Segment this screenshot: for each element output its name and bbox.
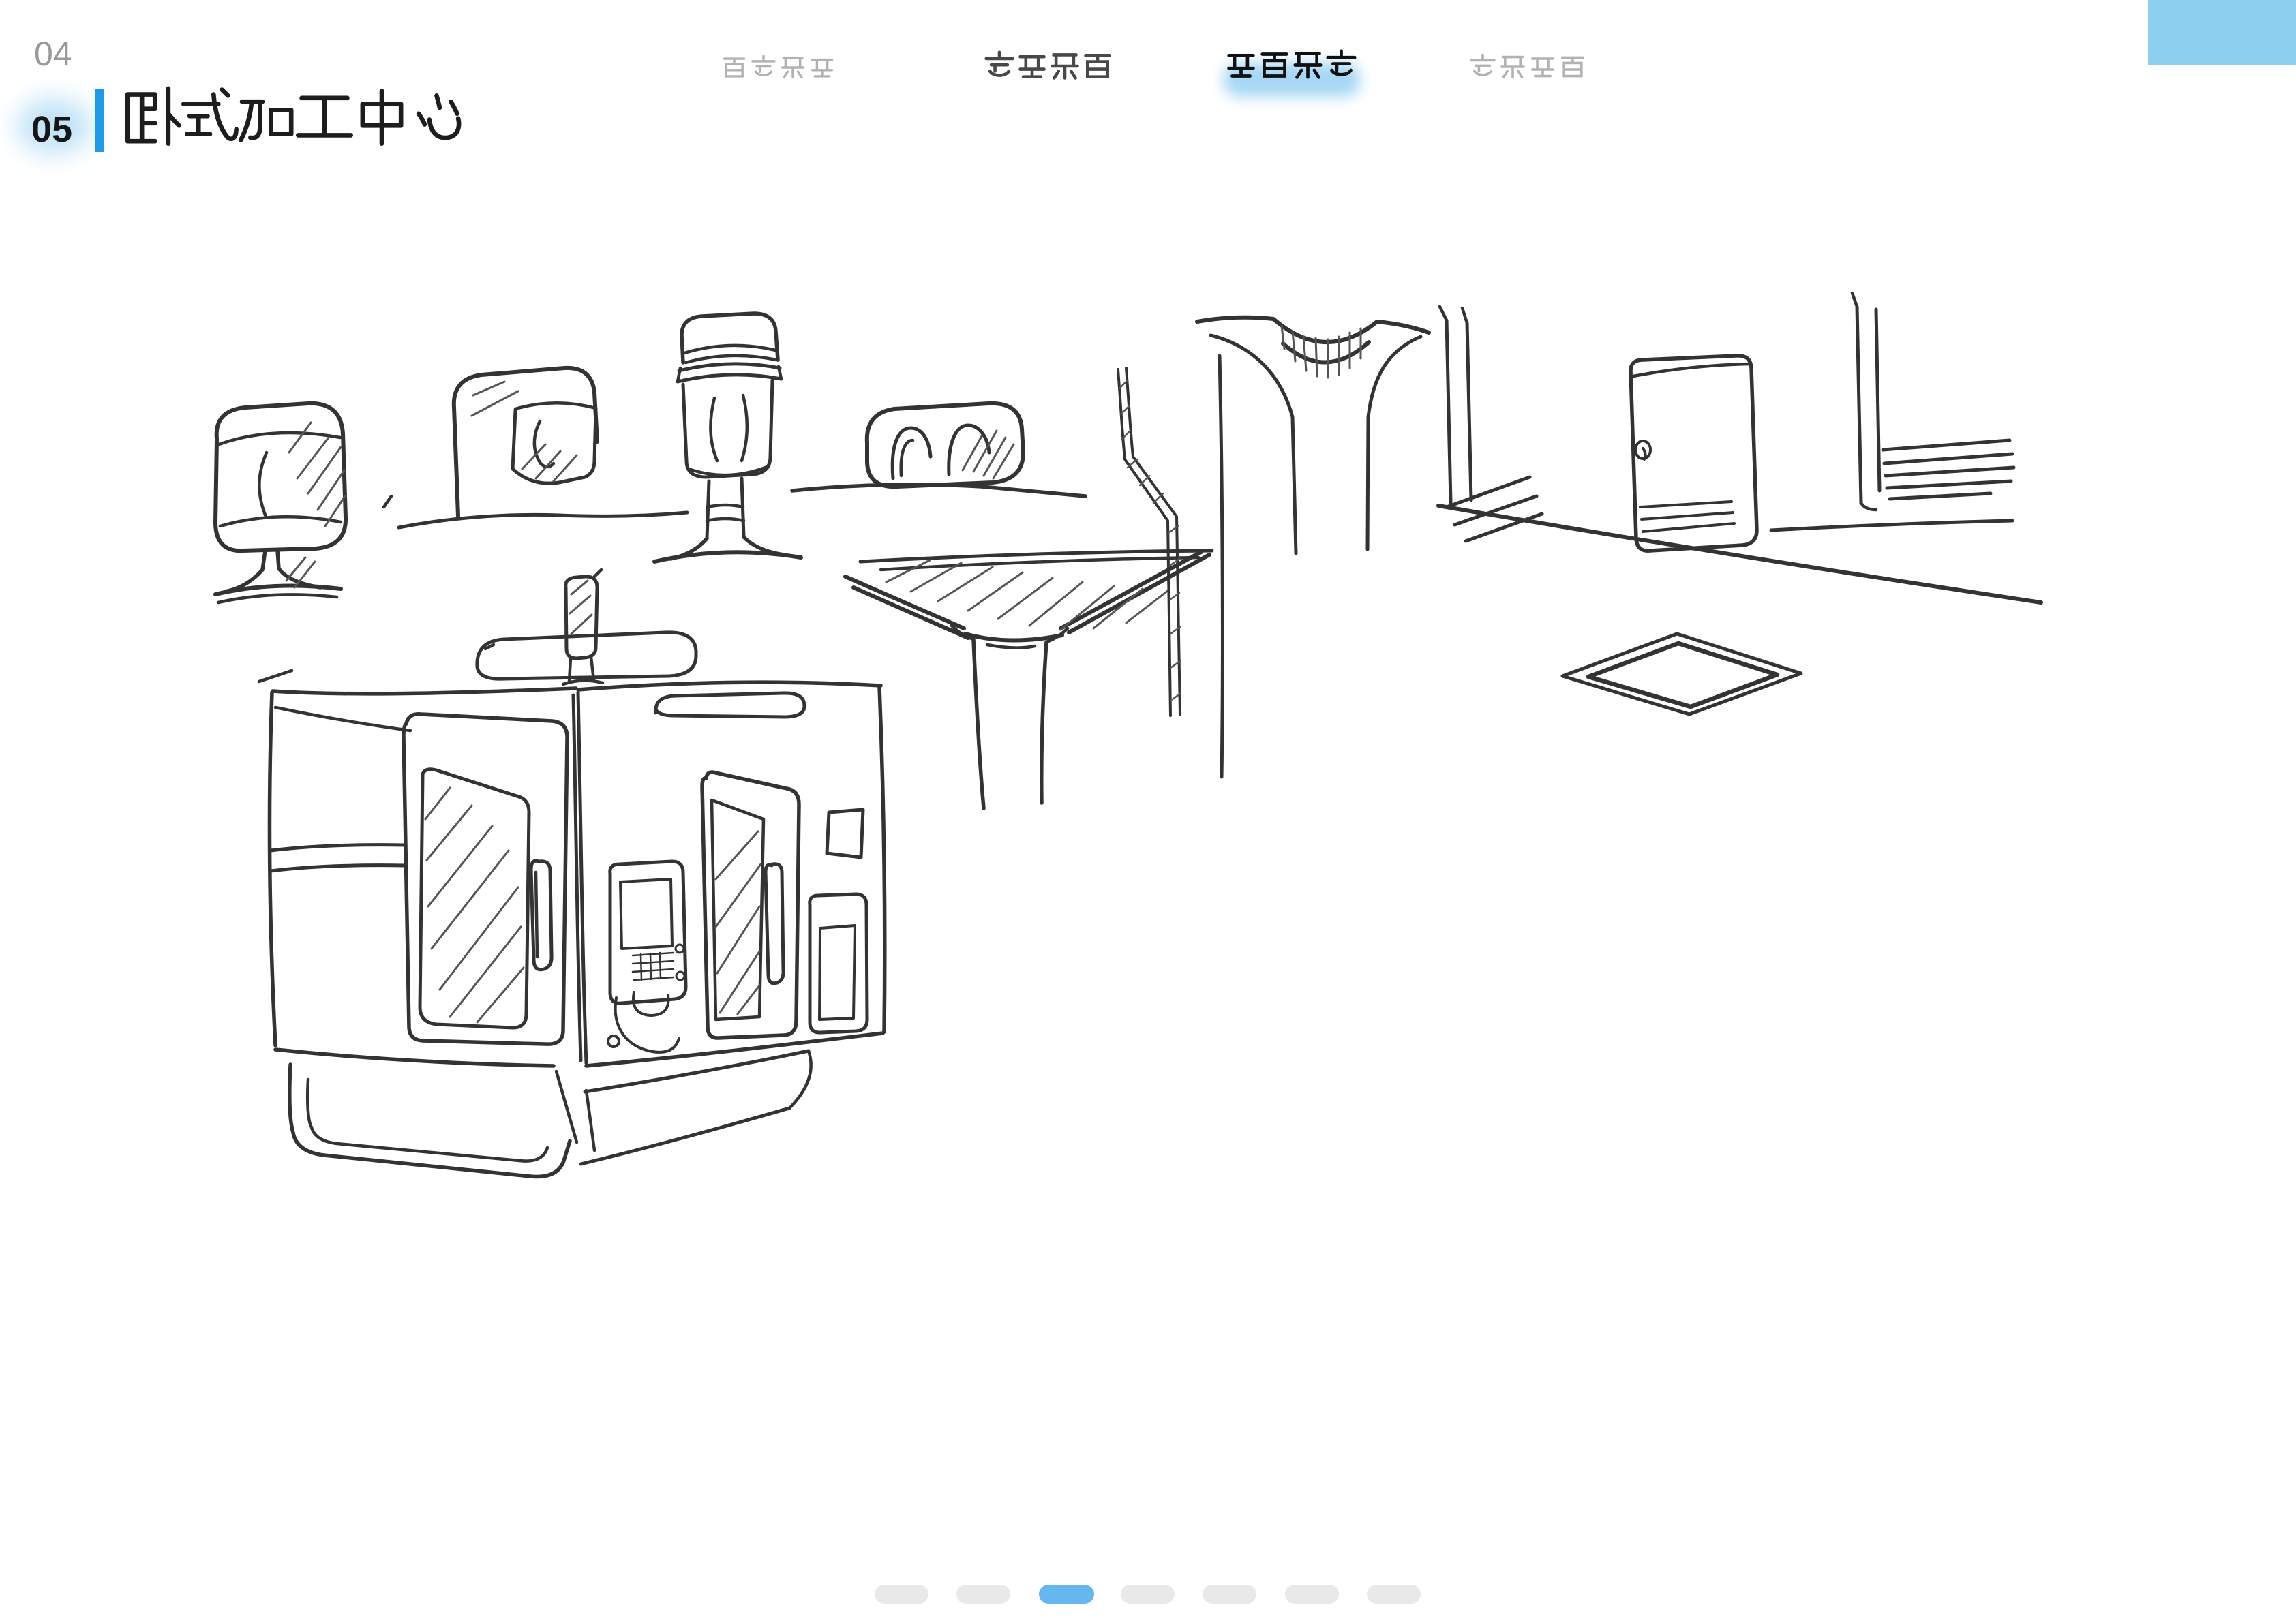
svg-text:04: 04	[34, 35, 72, 73]
svg-text:05: 05	[31, 109, 72, 150]
